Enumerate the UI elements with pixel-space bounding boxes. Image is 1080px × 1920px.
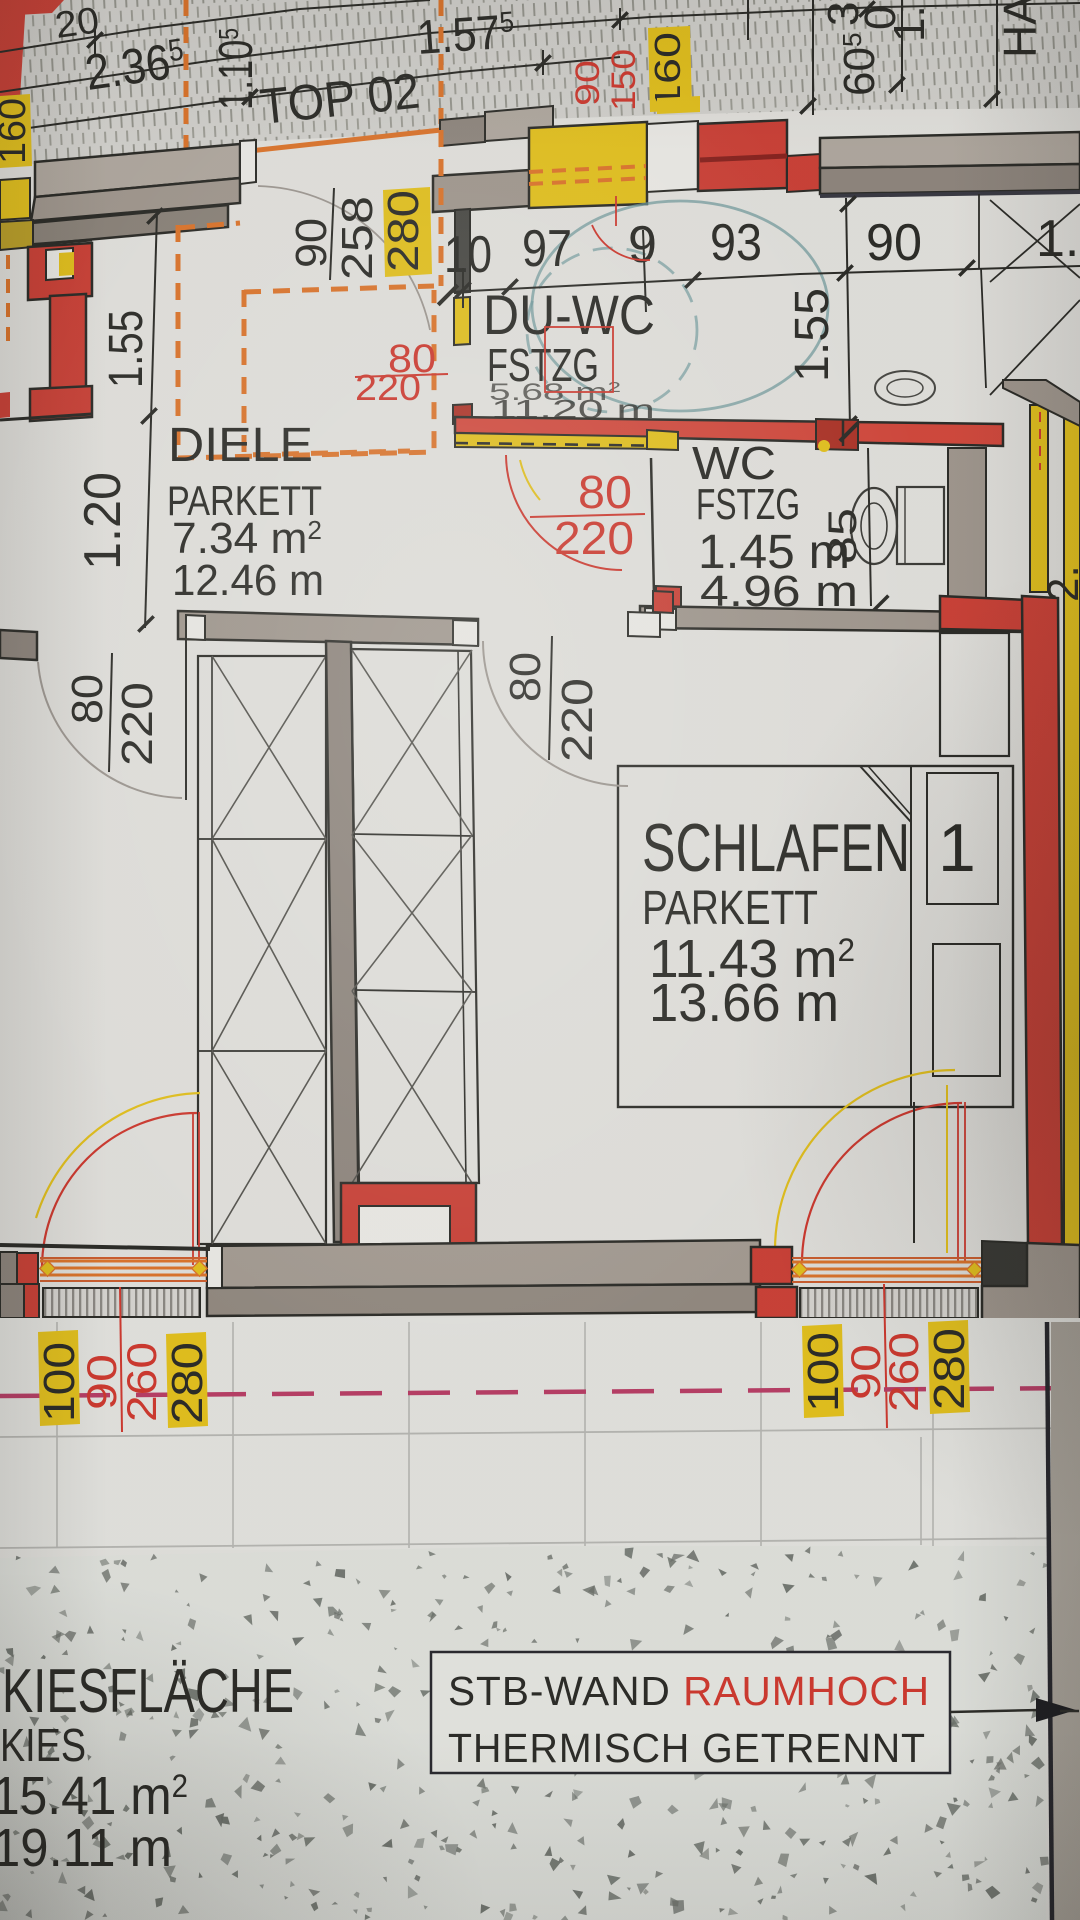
svg-text:KIES: KIES [0, 1719, 86, 1771]
svg-text:258: 258 [333, 196, 382, 280]
svg-text:FSTZG: FSTZG [696, 480, 800, 529]
svg-text:80: 80 [501, 652, 550, 702]
svg-text:9: 9 [628, 216, 657, 274]
svg-text:100: 100 [799, 1332, 848, 1412]
svg-text:90: 90 [866, 214, 922, 272]
svg-text:90: 90 [287, 218, 336, 268]
svg-text:1.575: 1.575 [415, 5, 516, 65]
svg-text:1.105: 1.105 [210, 28, 263, 110]
svg-text:90: 90 [569, 60, 607, 106]
svg-text:12.46 m: 12.46 m [172, 556, 324, 605]
svg-text:97: 97 [522, 220, 572, 278]
svg-text:DIELE: DIELE [168, 419, 313, 472]
svg-text:220: 220 [554, 512, 634, 564]
svg-text:150: 150 [605, 49, 643, 111]
svg-text:100: 100 [35, 1342, 84, 1422]
svg-text:1.55: 1.55 [786, 288, 839, 382]
svg-text:STB-WAND RAUMHOCH: STB-WAND RAUMHOCH [448, 1668, 930, 1714]
svg-text:85: 85 [821, 508, 865, 564]
svg-text:HA: HA [994, 0, 1046, 58]
svg-text:220: 220 [553, 678, 602, 762]
svg-text:280: 280 [925, 1328, 974, 1410]
svg-text:1.55: 1.55 [100, 310, 153, 388]
svg-text:15.41 m2: 15.41 m2 [0, 1766, 188, 1826]
svg-text:80: 80 [63, 674, 112, 724]
svg-text:260: 260 [880, 1332, 927, 1412]
svg-text:13.66 m: 13.66 m [649, 973, 839, 1033]
svg-text:10: 10 [444, 226, 492, 284]
svg-text:SCHLAFEN: SCHLAFEN [642, 810, 910, 886]
svg-text:1.: 1. [885, 5, 934, 42]
svg-text:DU-WC: DU-WC [483, 283, 655, 346]
svg-text:KIESFLÄCHE: KIESFLÄCHE [2, 1657, 294, 1726]
svg-text:19.11 m: 19.11 m [0, 1818, 172, 1878]
svg-text:220: 220 [355, 367, 421, 408]
svg-text:93: 93 [710, 214, 762, 272]
svg-text:80: 80 [578, 466, 632, 518]
svg-text:220: 220 [113, 682, 162, 766]
svg-text:260: 260 [118, 1342, 165, 1422]
svg-text:1: 1 [938, 810, 976, 886]
svg-text:PARKETT: PARKETT [642, 882, 818, 935]
svg-text:160: 160 [0, 98, 34, 164]
svg-text:280: 280 [379, 190, 428, 272]
svg-text:20: 20 [52, 0, 101, 46]
svg-text:1.20: 1.20 [74, 472, 132, 570]
svg-text:THERMISCH GETRENNT: THERMISCH GETRENNT [448, 1725, 926, 1771]
svg-text:280: 280 [163, 1342, 212, 1424]
